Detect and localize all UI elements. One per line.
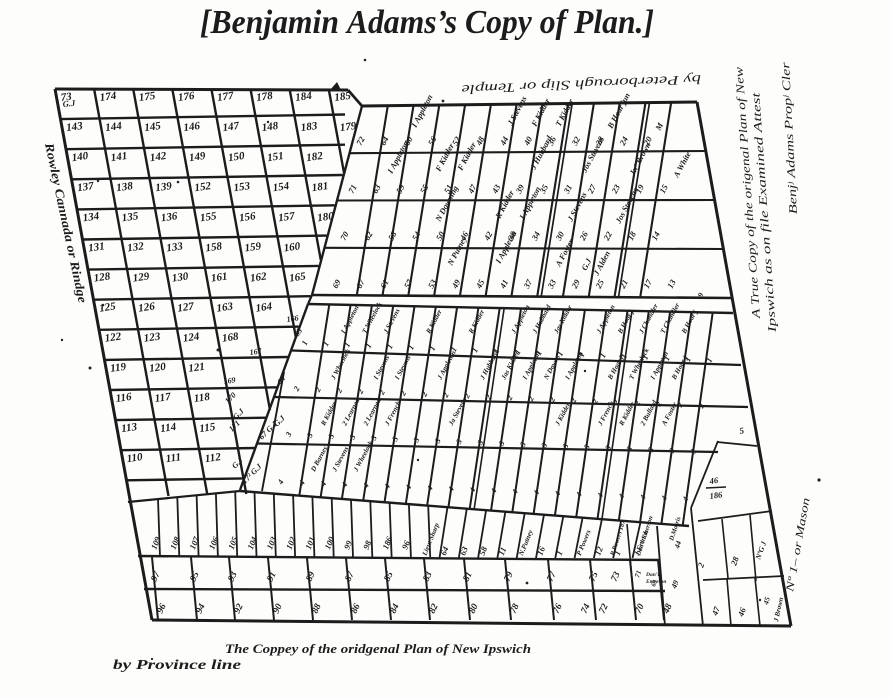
svg-text:44: 44 bbox=[672, 539, 683, 550]
svg-text:G.J: G.J bbox=[580, 256, 594, 272]
svg-text:25: 25 bbox=[593, 277, 607, 291]
svg-text:72: 72 bbox=[598, 602, 611, 615]
svg-text:179: 179 bbox=[339, 120, 358, 134]
svg-text:[Benjamin Adams’s Copy of Plan: [Benjamin Adams’s Copy of Plan.] bbox=[200, 4, 654, 41]
svg-text:170: 170 bbox=[223, 391, 238, 406]
svg-text:2 Learned: 2 Learned bbox=[361, 397, 383, 428]
svg-text:31: 31 bbox=[561, 183, 574, 196]
svg-text:158: 158 bbox=[205, 240, 224, 254]
svg-text:G.J: G.J bbox=[62, 98, 76, 109]
svg-text:140: 140 bbox=[71, 150, 90, 164]
svg-text:27: 27 bbox=[585, 182, 599, 196]
svg-text:NºG J: NºG J bbox=[753, 540, 768, 562]
svg-text:J Stevens: J Stevens bbox=[565, 191, 588, 224]
svg-text:A Foster: A Foster bbox=[553, 237, 576, 269]
svg-text:174: 174 bbox=[99, 90, 118, 104]
svg-text:156: 156 bbox=[238, 210, 257, 224]
svg-text:164: 164 bbox=[255, 300, 274, 314]
svg-text:121: 121 bbox=[188, 361, 206, 375]
svg-text:30: 30 bbox=[553, 229, 567, 243]
svg-text:133: 133 bbox=[166, 240, 185, 254]
svg-text:154: 154 bbox=[272, 180, 291, 194]
svg-text:166: 166 bbox=[286, 313, 299, 324]
svg-text:2: 2 bbox=[334, 387, 344, 396]
svg-text:45: 45 bbox=[473, 277, 487, 291]
svg-text:F Kidder: F Kidder bbox=[529, 96, 552, 129]
svg-text:110: 110 bbox=[126, 451, 144, 465]
svg-text:55: 55 bbox=[418, 182, 431, 195]
svg-text:128: 128 bbox=[93, 270, 112, 284]
svg-text:161: 161 bbox=[210, 270, 228, 284]
svg-text:139: 139 bbox=[155, 180, 174, 194]
svg-text:71: 71 bbox=[346, 183, 359, 195]
svg-text:41: 41 bbox=[497, 278, 510, 291]
svg-text:J Stevens: J Stevens bbox=[381, 307, 401, 336]
svg-text:150: 150 bbox=[227, 150, 246, 164]
svg-text:113: 113 bbox=[120, 421, 138, 435]
svg-text:63: 63 bbox=[370, 182, 383, 195]
svg-text:J Brown: J Brown bbox=[772, 596, 785, 623]
svg-text:J French: J French bbox=[383, 400, 403, 428]
svg-text:44: 44 bbox=[497, 135, 510, 148]
svg-text:144: 144 bbox=[105, 120, 124, 134]
svg-text:114: 114 bbox=[160, 421, 178, 435]
svg-text:2 Learned: 2 Learned bbox=[340, 397, 362, 428]
svg-text:2: 2 bbox=[696, 402, 706, 411]
svg-text:186: 186 bbox=[380, 534, 394, 550]
svg-text:134: 134 bbox=[82, 210, 101, 224]
svg-text:137: 137 bbox=[76, 180, 95, 194]
svg-text:Jnº Brown: Jnº Brown bbox=[627, 141, 652, 178]
svg-text:43: 43 bbox=[489, 182, 503, 196]
svg-text:23: 23 bbox=[609, 182, 623, 196]
svg-text:163: 163 bbox=[216, 300, 235, 314]
svg-text:R Kidder: R Kidder bbox=[467, 308, 487, 336]
svg-text:2: 2 bbox=[419, 390, 429, 399]
svg-text:I Appleton: I Appleton bbox=[385, 139, 410, 176]
svg-text:37: 37 bbox=[521, 277, 535, 291]
svg-text:153: 153 bbox=[233, 180, 252, 194]
svg-text:175: 175 bbox=[138, 90, 157, 104]
svg-text:95: 95 bbox=[189, 570, 202, 583]
svg-text:73: 73 bbox=[610, 570, 623, 583]
svg-text:143: 143 bbox=[65, 120, 84, 134]
svg-text:57: 57 bbox=[402, 277, 415, 290]
svg-text:G.J: G.J bbox=[230, 455, 245, 470]
svg-text:168: 168 bbox=[221, 331, 240, 345]
svg-text:132: 132 bbox=[127, 240, 146, 254]
svg-text:125: 125 bbox=[98, 300, 117, 314]
svg-text:176: 176 bbox=[177, 90, 196, 104]
svg-text:5: 5 bbox=[739, 425, 746, 436]
svg-text:169: 169 bbox=[223, 375, 236, 386]
svg-text:22: 22 bbox=[601, 229, 615, 243]
svg-text:4: 4 bbox=[275, 478, 285, 487]
svg-text:34: 34 bbox=[529, 230, 542, 243]
svg-text:148: 148 bbox=[261, 120, 280, 134]
svg-text:The Coppey of the oridgenal Pl: The Coppey of the oridgenal Plan of New … bbox=[225, 641, 531, 656]
svg-text:183: 183 bbox=[300, 120, 319, 134]
svg-text:33: 33 bbox=[545, 277, 559, 291]
svg-text:151: 151 bbox=[266, 150, 284, 164]
svg-text:120: 120 bbox=[149, 361, 168, 375]
svg-text:180: 180 bbox=[317, 210, 336, 224]
svg-text:24: 24 bbox=[617, 135, 630, 148]
svg-text:70: 70 bbox=[338, 229, 351, 242]
svg-text:69: 69 bbox=[330, 277, 343, 290]
svg-text:R Kidder: R Kidder bbox=[424, 308, 444, 336]
svg-text:A White: A White bbox=[671, 150, 693, 180]
svg-text:142: 142 bbox=[149, 150, 168, 164]
svg-text:2: 2 bbox=[398, 389, 408, 398]
svg-text:138: 138 bbox=[116, 180, 135, 194]
svg-text:157: 157 bbox=[277, 210, 296, 224]
svg-text:135: 135 bbox=[121, 210, 140, 224]
svg-text:109: 109 bbox=[149, 534, 163, 550]
svg-text:83: 83 bbox=[422, 570, 435, 583]
svg-text:M: M bbox=[653, 121, 665, 133]
svg-text:126: 126 bbox=[138, 300, 157, 314]
svg-text:54: 54 bbox=[410, 230, 423, 242]
svg-text:102: 102 bbox=[284, 534, 298, 550]
svg-text:3: 3 bbox=[283, 430, 293, 439]
svg-text:72: 72 bbox=[354, 134, 367, 147]
svg-text:46: 46 bbox=[735, 606, 748, 619]
svg-text:119: 119 bbox=[109, 361, 127, 375]
svg-text:145: 145 bbox=[144, 120, 163, 134]
svg-text:108: 108 bbox=[168, 534, 182, 550]
svg-text:136: 136 bbox=[160, 210, 179, 224]
svg-text:106: 106 bbox=[206, 534, 220, 550]
svg-text:177: 177 bbox=[216, 90, 235, 104]
svg-text:75: 75 bbox=[588, 570, 601, 583]
svg-text:122: 122 bbox=[104, 331, 123, 345]
svg-text:74: 74 bbox=[580, 602, 593, 615]
svg-text:178: 178 bbox=[255, 90, 274, 104]
svg-text:P Powers 187: P Powers 187 bbox=[609, 519, 627, 557]
svg-text:61: 61 bbox=[378, 278, 391, 290]
svg-text:124: 124 bbox=[182, 331, 201, 345]
svg-text:J Stevens: J Stevens bbox=[505, 95, 528, 128]
svg-text:R Kidder: R Kidder bbox=[319, 400, 339, 428]
svg-text:171: 171 bbox=[227, 419, 242, 434]
svg-text:93: 93 bbox=[227, 570, 240, 583]
svg-text:185: 185 bbox=[334, 90, 353, 104]
svg-text:by Peterborough Slip or Temple: by Peterborough Slip or Temple bbox=[461, 72, 702, 97]
svg-text:141: 141 bbox=[110, 150, 128, 164]
svg-text:2: 2 bbox=[291, 385, 301, 394]
svg-text:182: 182 bbox=[306, 150, 325, 164]
svg-text:56: 56 bbox=[426, 134, 439, 147]
svg-text:1: 1 bbox=[300, 339, 310, 347]
svg-text:J Chandler: J Chandler bbox=[637, 302, 660, 336]
svg-text:127: 127 bbox=[177, 300, 196, 314]
svg-text:155: 155 bbox=[199, 210, 218, 224]
svg-text:97: 97 bbox=[150, 569, 164, 583]
svg-text:42: 42 bbox=[481, 229, 495, 243]
svg-text:123: 123 bbox=[143, 331, 162, 345]
svg-text:87: 87 bbox=[344, 569, 358, 583]
svg-text:147: 147 bbox=[222, 120, 241, 134]
svg-text:85: 85 bbox=[383, 570, 396, 583]
svg-text:159: 159 bbox=[244, 240, 263, 254]
svg-text:181: 181 bbox=[311, 180, 329, 194]
svg-text:21: 21 bbox=[617, 278, 630, 291]
svg-text:111: 111 bbox=[165, 451, 182, 465]
svg-text:2: 2 bbox=[377, 388, 387, 397]
svg-text:107: 107 bbox=[187, 534, 201, 550]
svg-text:162: 162 bbox=[249, 270, 268, 284]
svg-text:49: 49 bbox=[669, 579, 681, 591]
svg-text:105: 105 bbox=[226, 534, 240, 550]
svg-text:184: 184 bbox=[295, 90, 314, 104]
svg-text:26: 26 bbox=[577, 229, 591, 243]
svg-text:117: 117 bbox=[154, 391, 172, 405]
svg-text:89: 89 bbox=[305, 570, 318, 583]
svg-text:14: 14 bbox=[649, 230, 662, 242]
svg-text:I Appleton: I Appleton bbox=[648, 350, 670, 382]
svg-text:T Chandler: T Chandler bbox=[659, 302, 682, 335]
svg-text:130: 130 bbox=[171, 270, 190, 284]
svg-text:F Kidder: F Kidder bbox=[433, 141, 456, 174]
svg-text:62: 62 bbox=[362, 229, 375, 242]
svg-text:131: 131 bbox=[87, 240, 105, 254]
svg-text:2: 2 bbox=[440, 391, 450, 400]
svg-text:64: 64 bbox=[378, 135, 391, 147]
svg-text:29: 29 bbox=[569, 277, 583, 291]
svg-text:81: 81 bbox=[462, 570, 475, 583]
svg-text:146: 146 bbox=[183, 120, 202, 134]
svg-text:2: 2 bbox=[355, 387, 365, 396]
svg-text:28: 28 bbox=[728, 555, 741, 568]
svg-text:by Province line: by Province line bbox=[113, 658, 241, 673]
svg-text:D.Morris: D.Morris bbox=[668, 515, 683, 542]
svg-text:79: 79 bbox=[503, 570, 516, 583]
svg-text:77: 77 bbox=[546, 569, 560, 583]
svg-text:Dan’l: Dan’l bbox=[645, 572, 660, 578]
svg-text:45: 45 bbox=[761, 596, 772, 607]
svg-text:165: 165 bbox=[288, 270, 307, 284]
svg-text:103: 103 bbox=[264, 534, 278, 550]
svg-text:186: 186 bbox=[709, 489, 724, 501]
svg-text:47: 47 bbox=[709, 605, 722, 618]
svg-text:J Appleton: J Appleton bbox=[594, 303, 616, 335]
svg-text:40: 40 bbox=[521, 134, 535, 148]
svg-text:115: 115 bbox=[199, 421, 217, 435]
svg-text:Benjʲ Adams Propʲ Cler: Benjʲ Adams Propʲ Cler bbox=[780, 61, 800, 214]
svg-text:2: 2 bbox=[313, 386, 323, 395]
svg-text:160: 160 bbox=[283, 240, 302, 254]
svg-text:32: 32 bbox=[569, 134, 583, 148]
svg-text:167: 167 bbox=[249, 346, 263, 357]
svg-text:46: 46 bbox=[708, 475, 720, 486]
svg-text:129: 129 bbox=[132, 270, 151, 284]
svg-text:149: 149 bbox=[188, 150, 207, 164]
svg-text:13: 13 bbox=[665, 277, 678, 290]
svg-text:Nº 1– or Mason: Nº 1– or Mason bbox=[784, 496, 813, 594]
svg-text:152: 152 bbox=[194, 180, 213, 194]
svg-text:B Hoar jun: B Hoar jun bbox=[605, 91, 632, 131]
svg-text:91: 91 bbox=[266, 570, 279, 583]
svg-text:100: 100 bbox=[322, 534, 336, 550]
svg-text:112: 112 bbox=[204, 451, 222, 465]
svg-text:118: 118 bbox=[193, 391, 211, 405]
svg-text:116: 116 bbox=[115, 391, 133, 405]
svg-text:B Hoar j: B Hoar j bbox=[670, 355, 689, 382]
svg-text:71: 71 bbox=[633, 569, 643, 578]
